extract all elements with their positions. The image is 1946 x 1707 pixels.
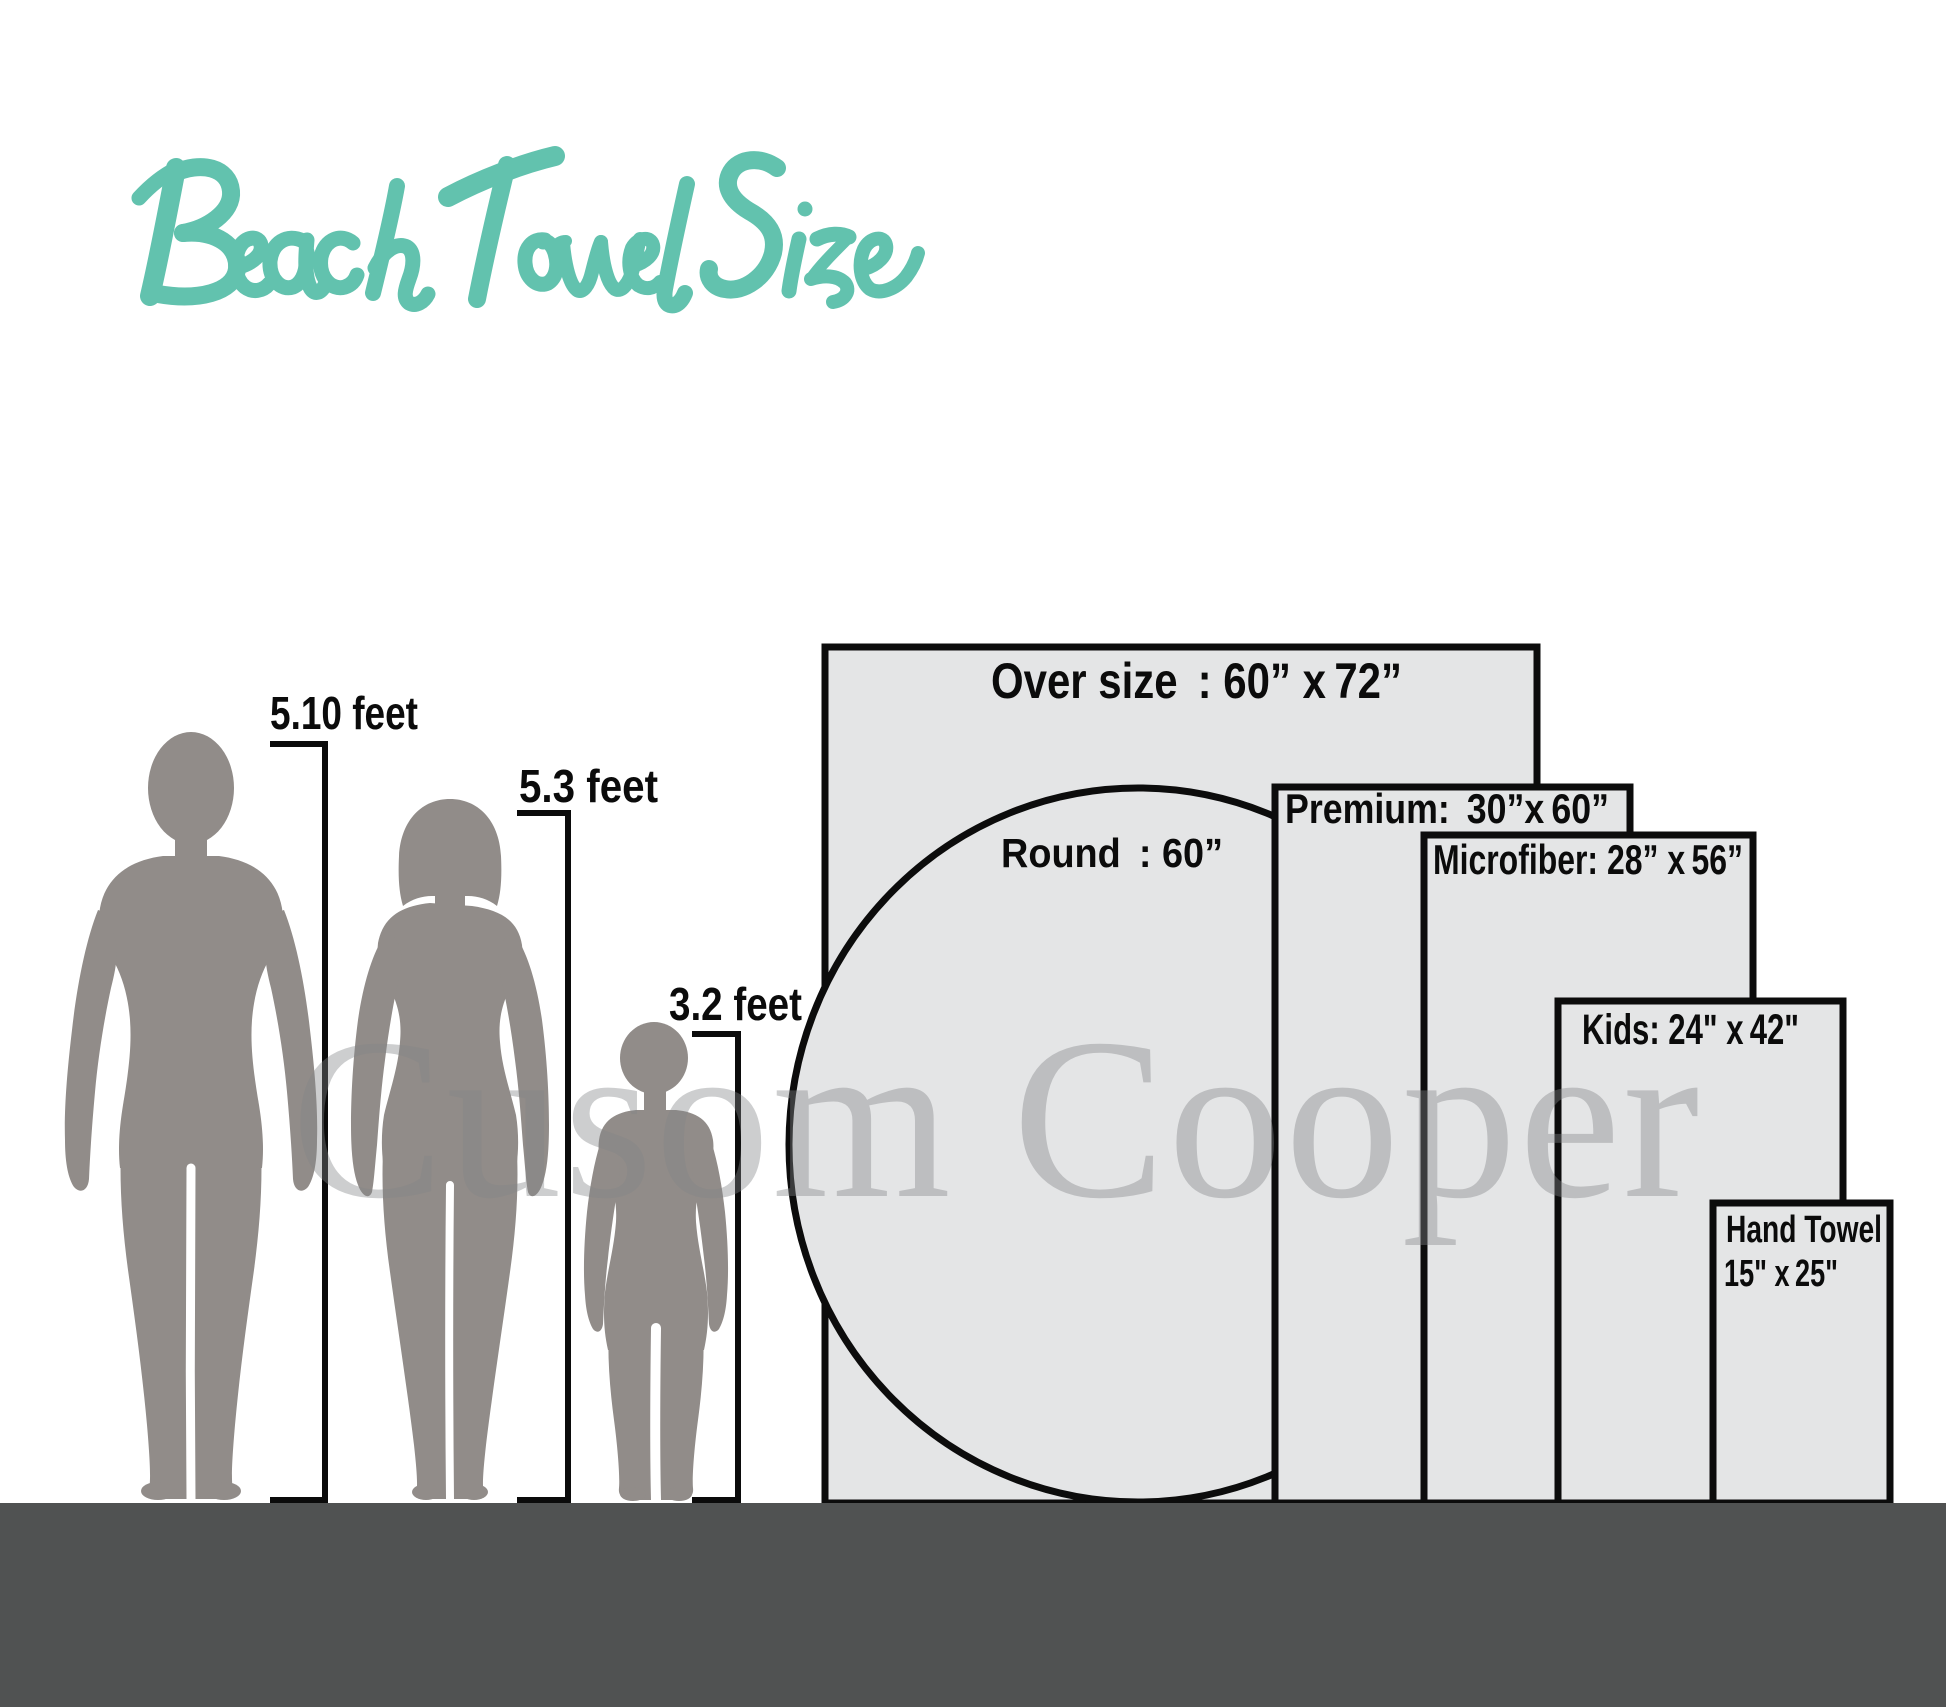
svg-text:Hand Towel: Hand Towel <box>1726 1209 1882 1251</box>
svg-text:Cusom Cooper: Cusom Cooper <box>291 991 1701 1246</box>
svg-text:15" x 25": 15" x 25" <box>1724 1253 1838 1295</box>
svg-text:Microfiber: 28” x 56”: Microfiber: 28” x 56” <box>1433 836 1743 883</box>
svg-text:5.3 feet: 5.3 feet <box>519 760 658 812</box>
svg-text:Over size : 60” x 72”: Over size : 60” x 72” <box>991 653 1402 709</box>
svg-text:5.10 feet: 5.10 feet <box>270 687 418 739</box>
svg-text:Round : 60”: Round : 60” <box>1001 830 1223 876</box>
svg-text:Premium: 30”x 60”: Premium: 30”x 60” <box>1285 785 1609 832</box>
